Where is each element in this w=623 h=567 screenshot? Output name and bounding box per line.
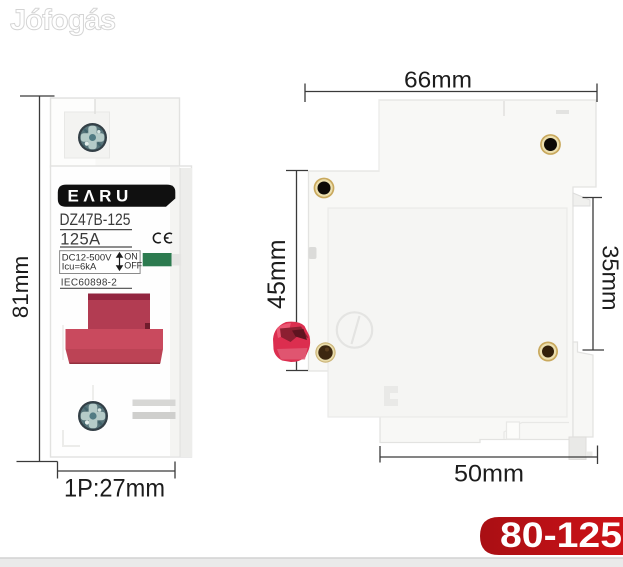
svg-text:Icu=6kA: Icu=6kA [62, 261, 97, 272]
svg-text:35mm: 35mm [598, 245, 623, 310]
svg-text:66mm: 66mm [404, 67, 472, 93]
svg-text:Jófogás: Jófogás [10, 5, 116, 37]
svg-text:80-125: 80-125 [500, 516, 622, 555]
svg-text:1P:27mm: 1P:27mm [64, 475, 165, 503]
svg-text:45mm: 45mm [263, 239, 291, 308]
svg-text:81mm: 81mm [8, 256, 33, 319]
svg-text:OFF: OFF [124, 261, 142, 271]
svg-text:IEC60898-2: IEC60898-2 [61, 278, 118, 289]
svg-text:EΛRU: EΛRU [68, 187, 133, 206]
svg-text:DZ47B-125: DZ47B-125 [60, 211, 131, 229]
svg-text:50mm: 50mm [454, 461, 524, 488]
svg-text:125A: 125A [60, 231, 100, 249]
